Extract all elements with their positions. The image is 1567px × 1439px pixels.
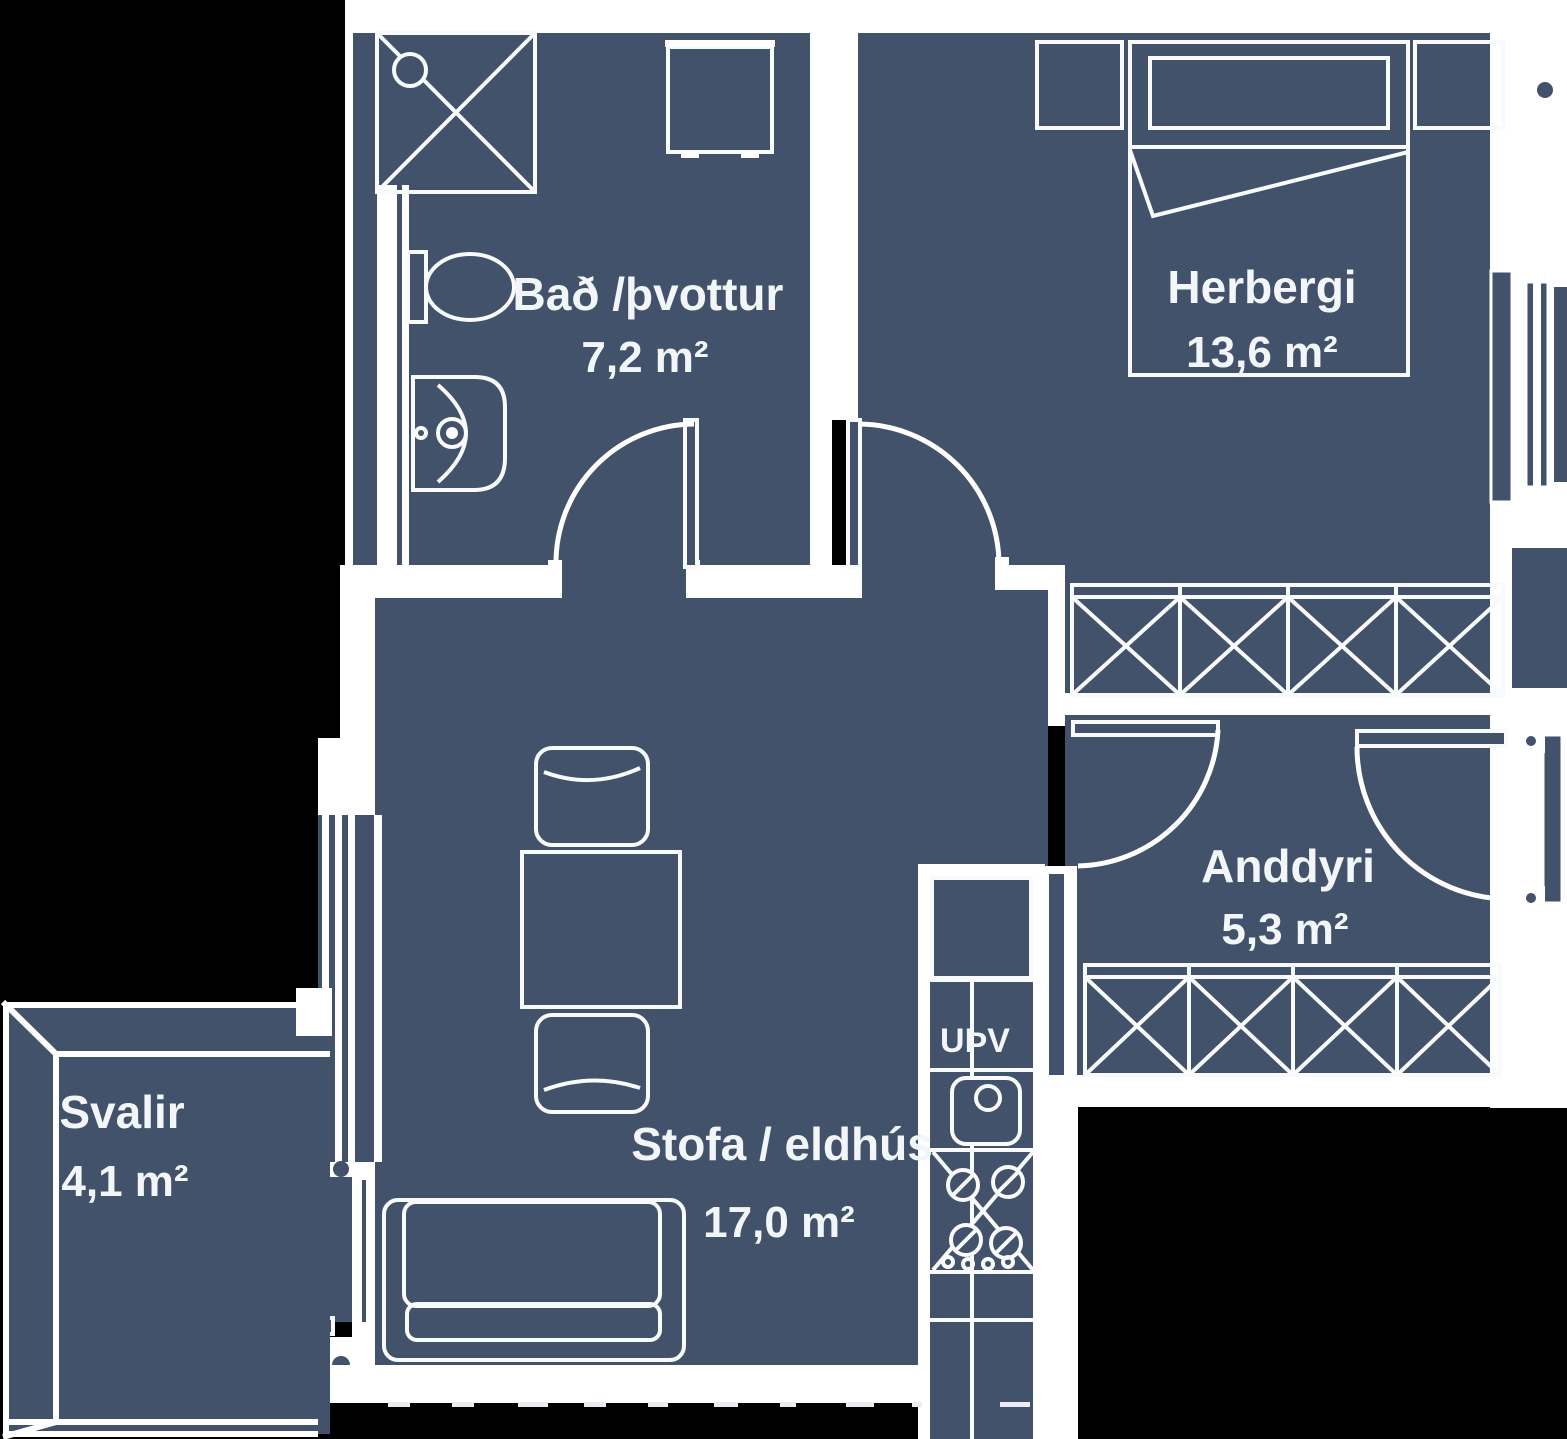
room-label-balcony: Svalir	[59, 1086, 184, 1138]
door-jamb	[548, 560, 562, 598]
kitchen-counter-floor	[930, 876, 1033, 1439]
wall-entrance-right-b	[1505, 895, 1520, 1107]
kitchen-sink-icon	[952, 1078, 1020, 1144]
hinge-dot	[1526, 893, 1536, 903]
wall-bath-bed-divider-lower	[810, 420, 832, 572]
wall-seam	[362, 1180, 366, 1322]
adjacent-structure	[1512, 548, 1567, 688]
wall-seam	[397, 185, 402, 575]
window-frame-line	[374, 815, 382, 1162]
wall-kitchen-side-band	[1040, 1107, 1078, 1439]
wall-bath-plumbing	[377, 185, 409, 575]
room-label-living: Stofa / eldhús	[631, 1118, 933, 1170]
entrance-door-leaf-exterior	[1543, 735, 1562, 903]
hinge-dot	[1526, 736, 1536, 746]
room-area-living: 17,0 m²	[703, 1198, 855, 1247]
wall-entrance-bottom	[1040, 1075, 1520, 1107]
balcony	[3, 988, 332, 1437]
room-area-bathroom: 7,2 m²	[581, 333, 708, 382]
room-area-entrance: 5,3 m²	[1221, 905, 1348, 954]
wall-corridor-b	[695, 565, 858, 598]
wall-left-outer	[345, 0, 353, 572]
window-sill-block	[318, 738, 375, 815]
kitchen-counter: UÞV	[918, 864, 1045, 1439]
room-area-bedroom: 13,6 m²	[1186, 328, 1338, 377]
wall-left-living	[340, 565, 375, 743]
room-label-entrance: Anddyri	[1201, 840, 1375, 892]
window-sill-exterior	[1554, 287, 1567, 482]
railing-wall-block	[296, 988, 332, 1036]
floor-plan: UÞV	[0, 0, 1567, 1439]
wall-corridor-return	[1048, 586, 1065, 726]
floor-plan-page: UÞV	[0, 0, 1567, 1439]
dishwasher-label: UÞV	[940, 1022, 1010, 1060]
wall-seam	[1049, 874, 1064, 1075]
window-frame-line	[348, 815, 355, 1162]
room-label-bathroom: Bað /þvottur	[513, 268, 784, 320]
room-label-bedroom: Herbergi	[1167, 261, 1356, 313]
hinge-dot	[333, 1161, 349, 1177]
wall-bath-bed-divider	[810, 0, 858, 420]
wall-bottom	[318, 1365, 925, 1403]
room-area-balcony: 4,1 m²	[61, 1157, 188, 1206]
reference-dot	[1537, 82, 1553, 98]
bedroom-window-icon	[1491, 271, 1567, 502]
window-frame-line	[335, 815, 342, 1162]
wall-top	[345, 0, 1520, 33]
